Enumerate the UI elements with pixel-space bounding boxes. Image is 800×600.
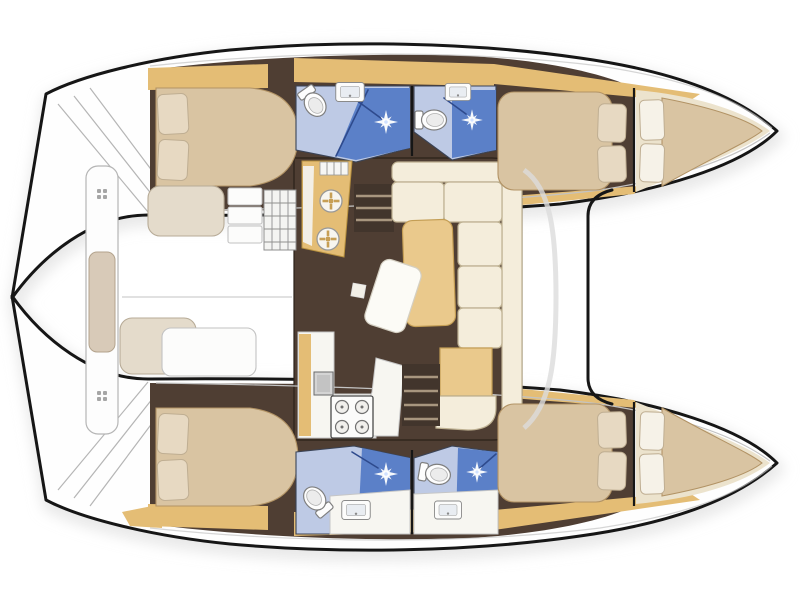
starboard-companionway-steps bbox=[402, 364, 440, 426]
pillow bbox=[597, 104, 626, 143]
stove-4-burner bbox=[331, 396, 373, 438]
floorplan-svg bbox=[0, 0, 800, 600]
berth bbox=[498, 92, 612, 190]
sink-icon bbox=[336, 83, 365, 102]
galley-sink-basin bbox=[317, 375, 330, 392]
catamaran-floorplan bbox=[0, 0, 800, 600]
sofa-cushion bbox=[458, 266, 502, 308]
toilet-icon bbox=[415, 110, 447, 130]
sink-icon bbox=[342, 501, 371, 520]
hatch-grid bbox=[264, 190, 296, 250]
sofa-cushion bbox=[444, 182, 502, 222]
port-aft-head bbox=[296, 83, 410, 163]
port-forward-cabin bbox=[498, 92, 627, 190]
pillow bbox=[157, 413, 189, 455]
shelves bbox=[228, 188, 262, 243]
cockpit-bench bbox=[86, 166, 118, 434]
sofa-cushion bbox=[458, 308, 502, 348]
pillow bbox=[639, 144, 664, 183]
cabinet-face bbox=[299, 334, 311, 436]
seat-ottoman bbox=[148, 186, 224, 236]
pillow bbox=[157, 93, 189, 135]
starboard-aft-head bbox=[296, 446, 410, 534]
pillow bbox=[157, 459, 189, 501]
round-galley-sink bbox=[320, 190, 342, 212]
sofa-cushion bbox=[458, 222, 502, 266]
sink-icon bbox=[445, 84, 471, 101]
berth bbox=[498, 404, 612, 502]
round-galley-sink bbox=[317, 228, 339, 250]
sofa-back bbox=[502, 162, 522, 430]
floor-chip bbox=[351, 283, 366, 298]
sink-icon bbox=[435, 501, 462, 519]
pillow bbox=[597, 412, 626, 449]
starboard-forward-cabin bbox=[498, 404, 627, 502]
bench-cushion bbox=[89, 252, 115, 352]
starboard-forward-head bbox=[414, 446, 498, 534]
pillow bbox=[157, 139, 189, 181]
sofa-cushion bbox=[392, 182, 444, 222]
sofa-end bbox=[436, 396, 496, 430]
pillow bbox=[639, 412, 664, 451]
port-companionway-steps bbox=[354, 184, 394, 232]
galley bbox=[302, 161, 352, 257]
pillow bbox=[597, 146, 626, 183]
pillow bbox=[639, 100, 664, 141]
pillow bbox=[639, 454, 664, 495]
pillow bbox=[597, 452, 626, 491]
berth-extension bbox=[162, 328, 256, 376]
port-aft-cabin bbox=[148, 88, 298, 250]
aft-cabinet bbox=[440, 348, 492, 396]
